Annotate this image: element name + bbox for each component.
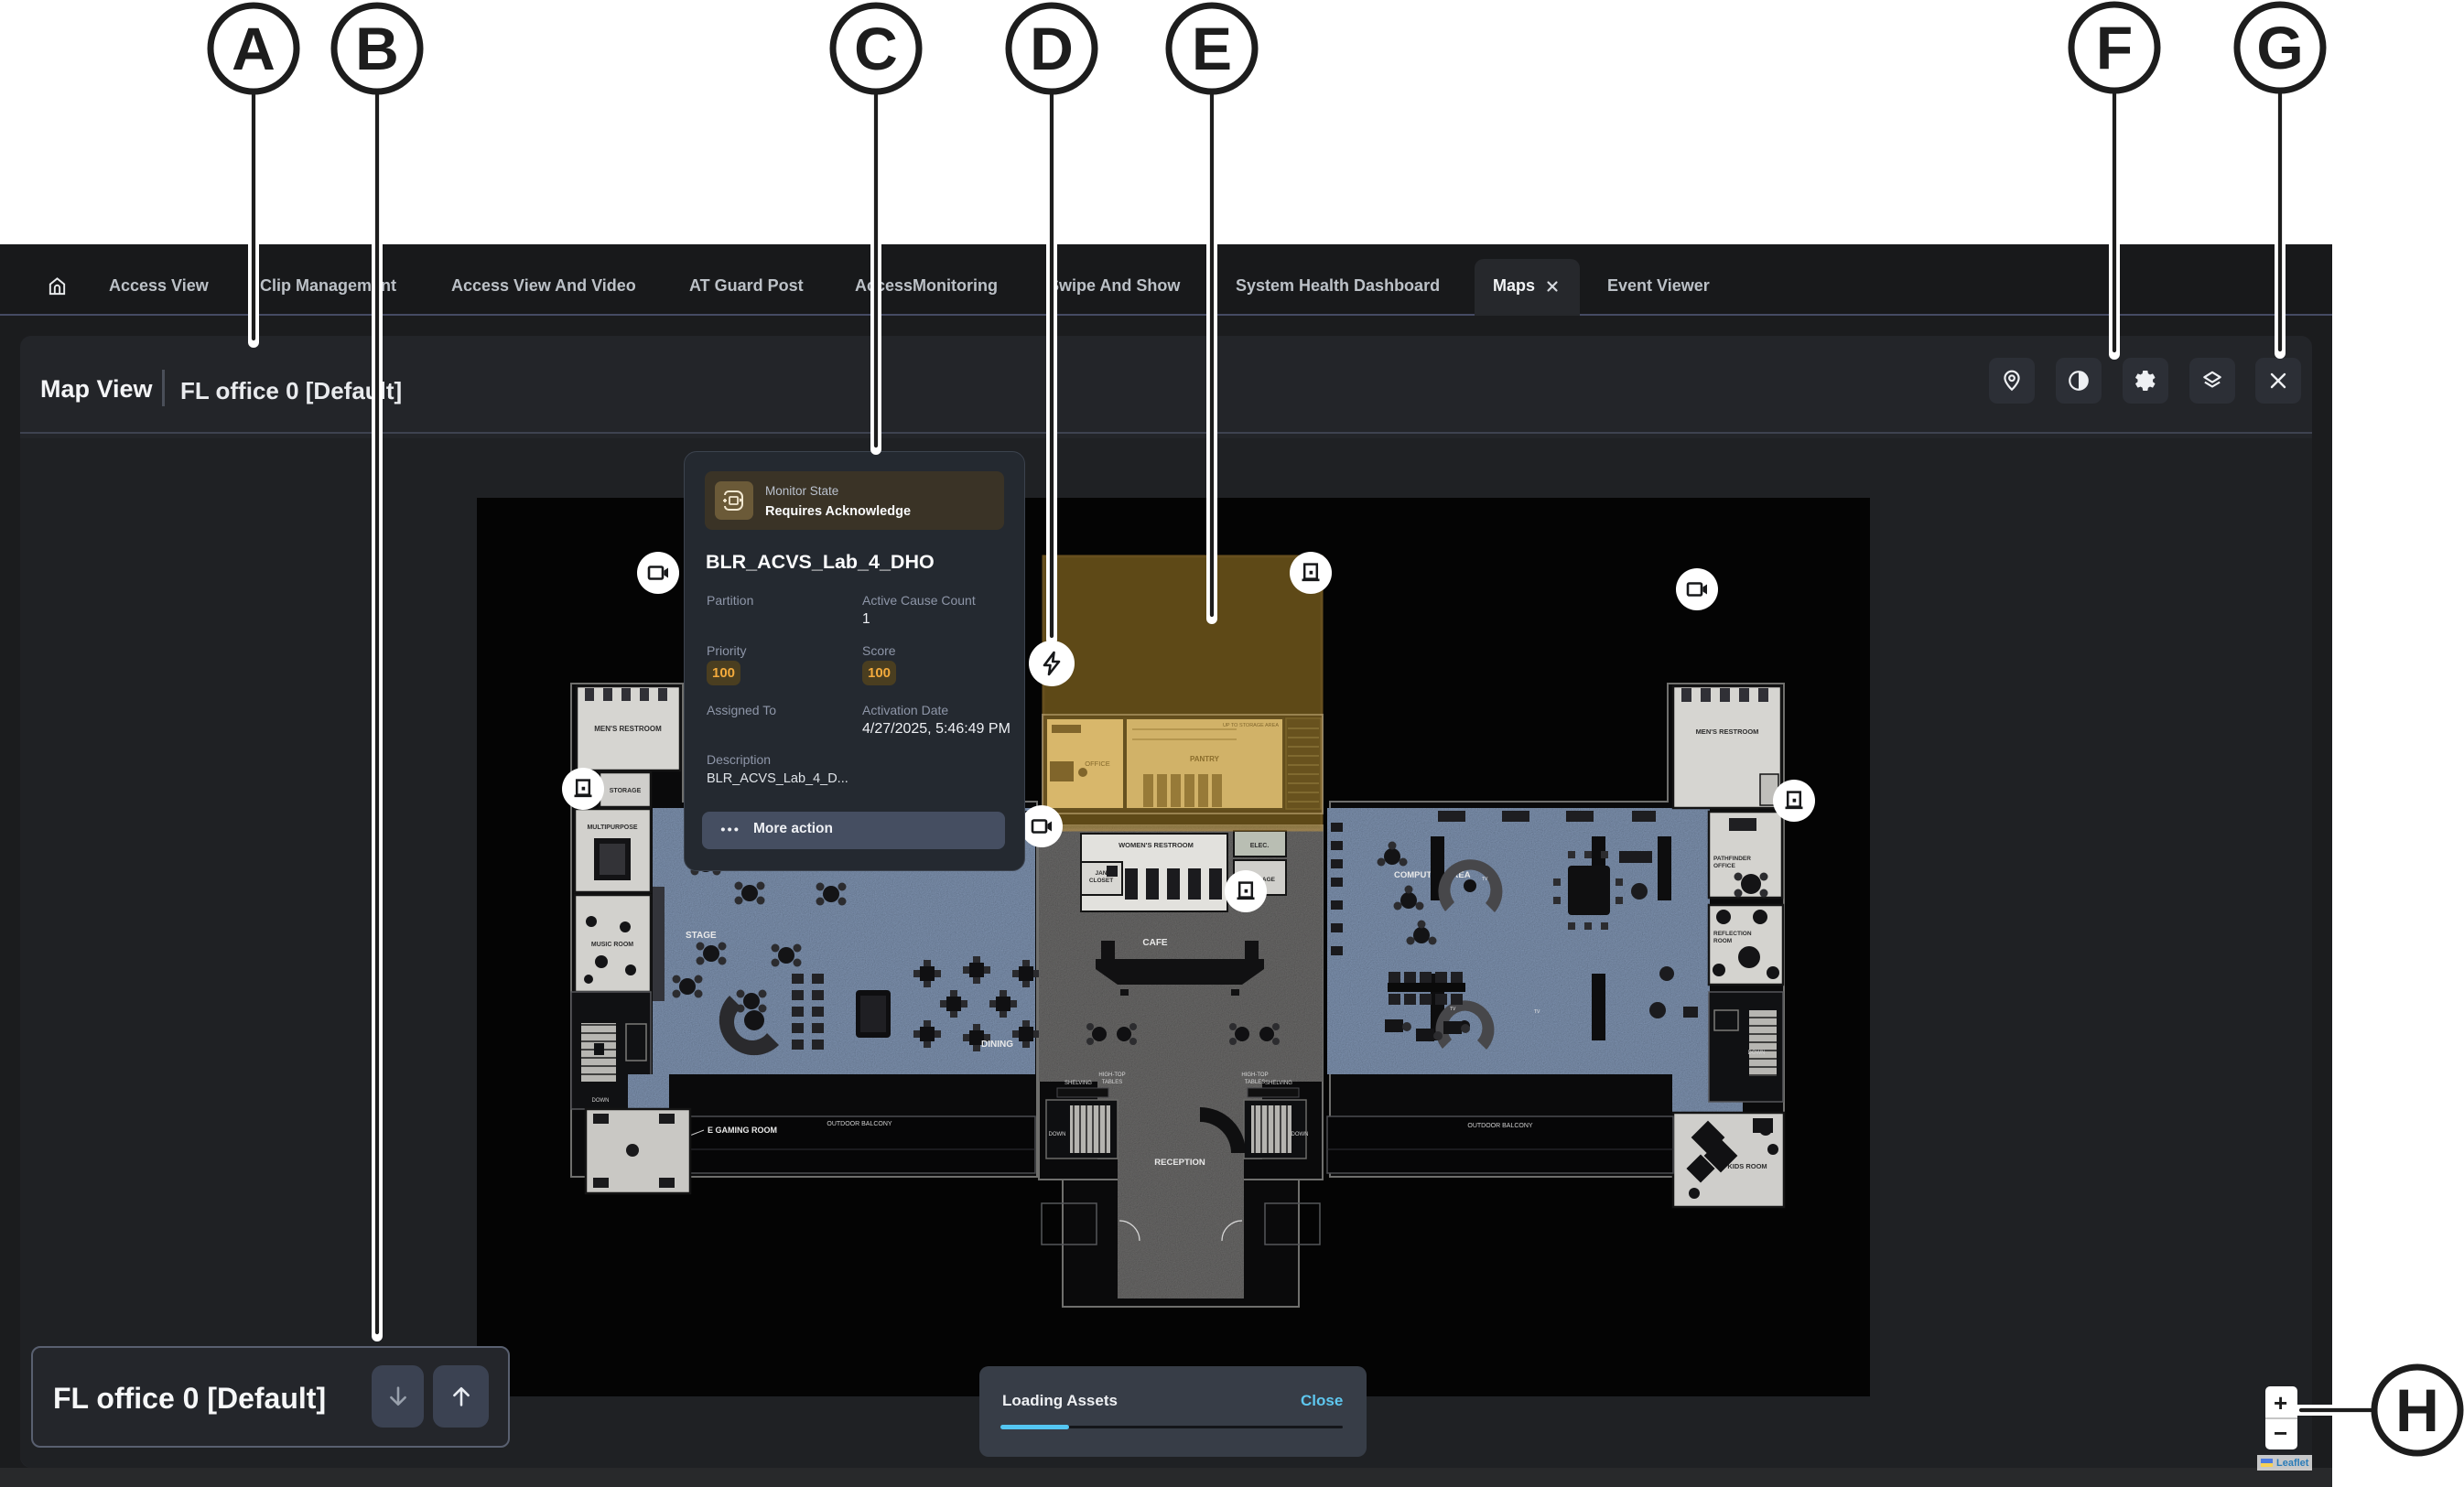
svg-text:H: H [2395, 1376, 2439, 1444]
svg-text:E: E [1192, 15, 1232, 82]
svg-text:C: C [854, 15, 898, 82]
svg-text:D: D [1030, 15, 1074, 82]
svg-text:B: B [355, 15, 399, 82]
svg-text:G: G [2256, 14, 2303, 81]
svg-text:A: A [232, 15, 276, 82]
svg-text:F: F [2096, 14, 2133, 81]
